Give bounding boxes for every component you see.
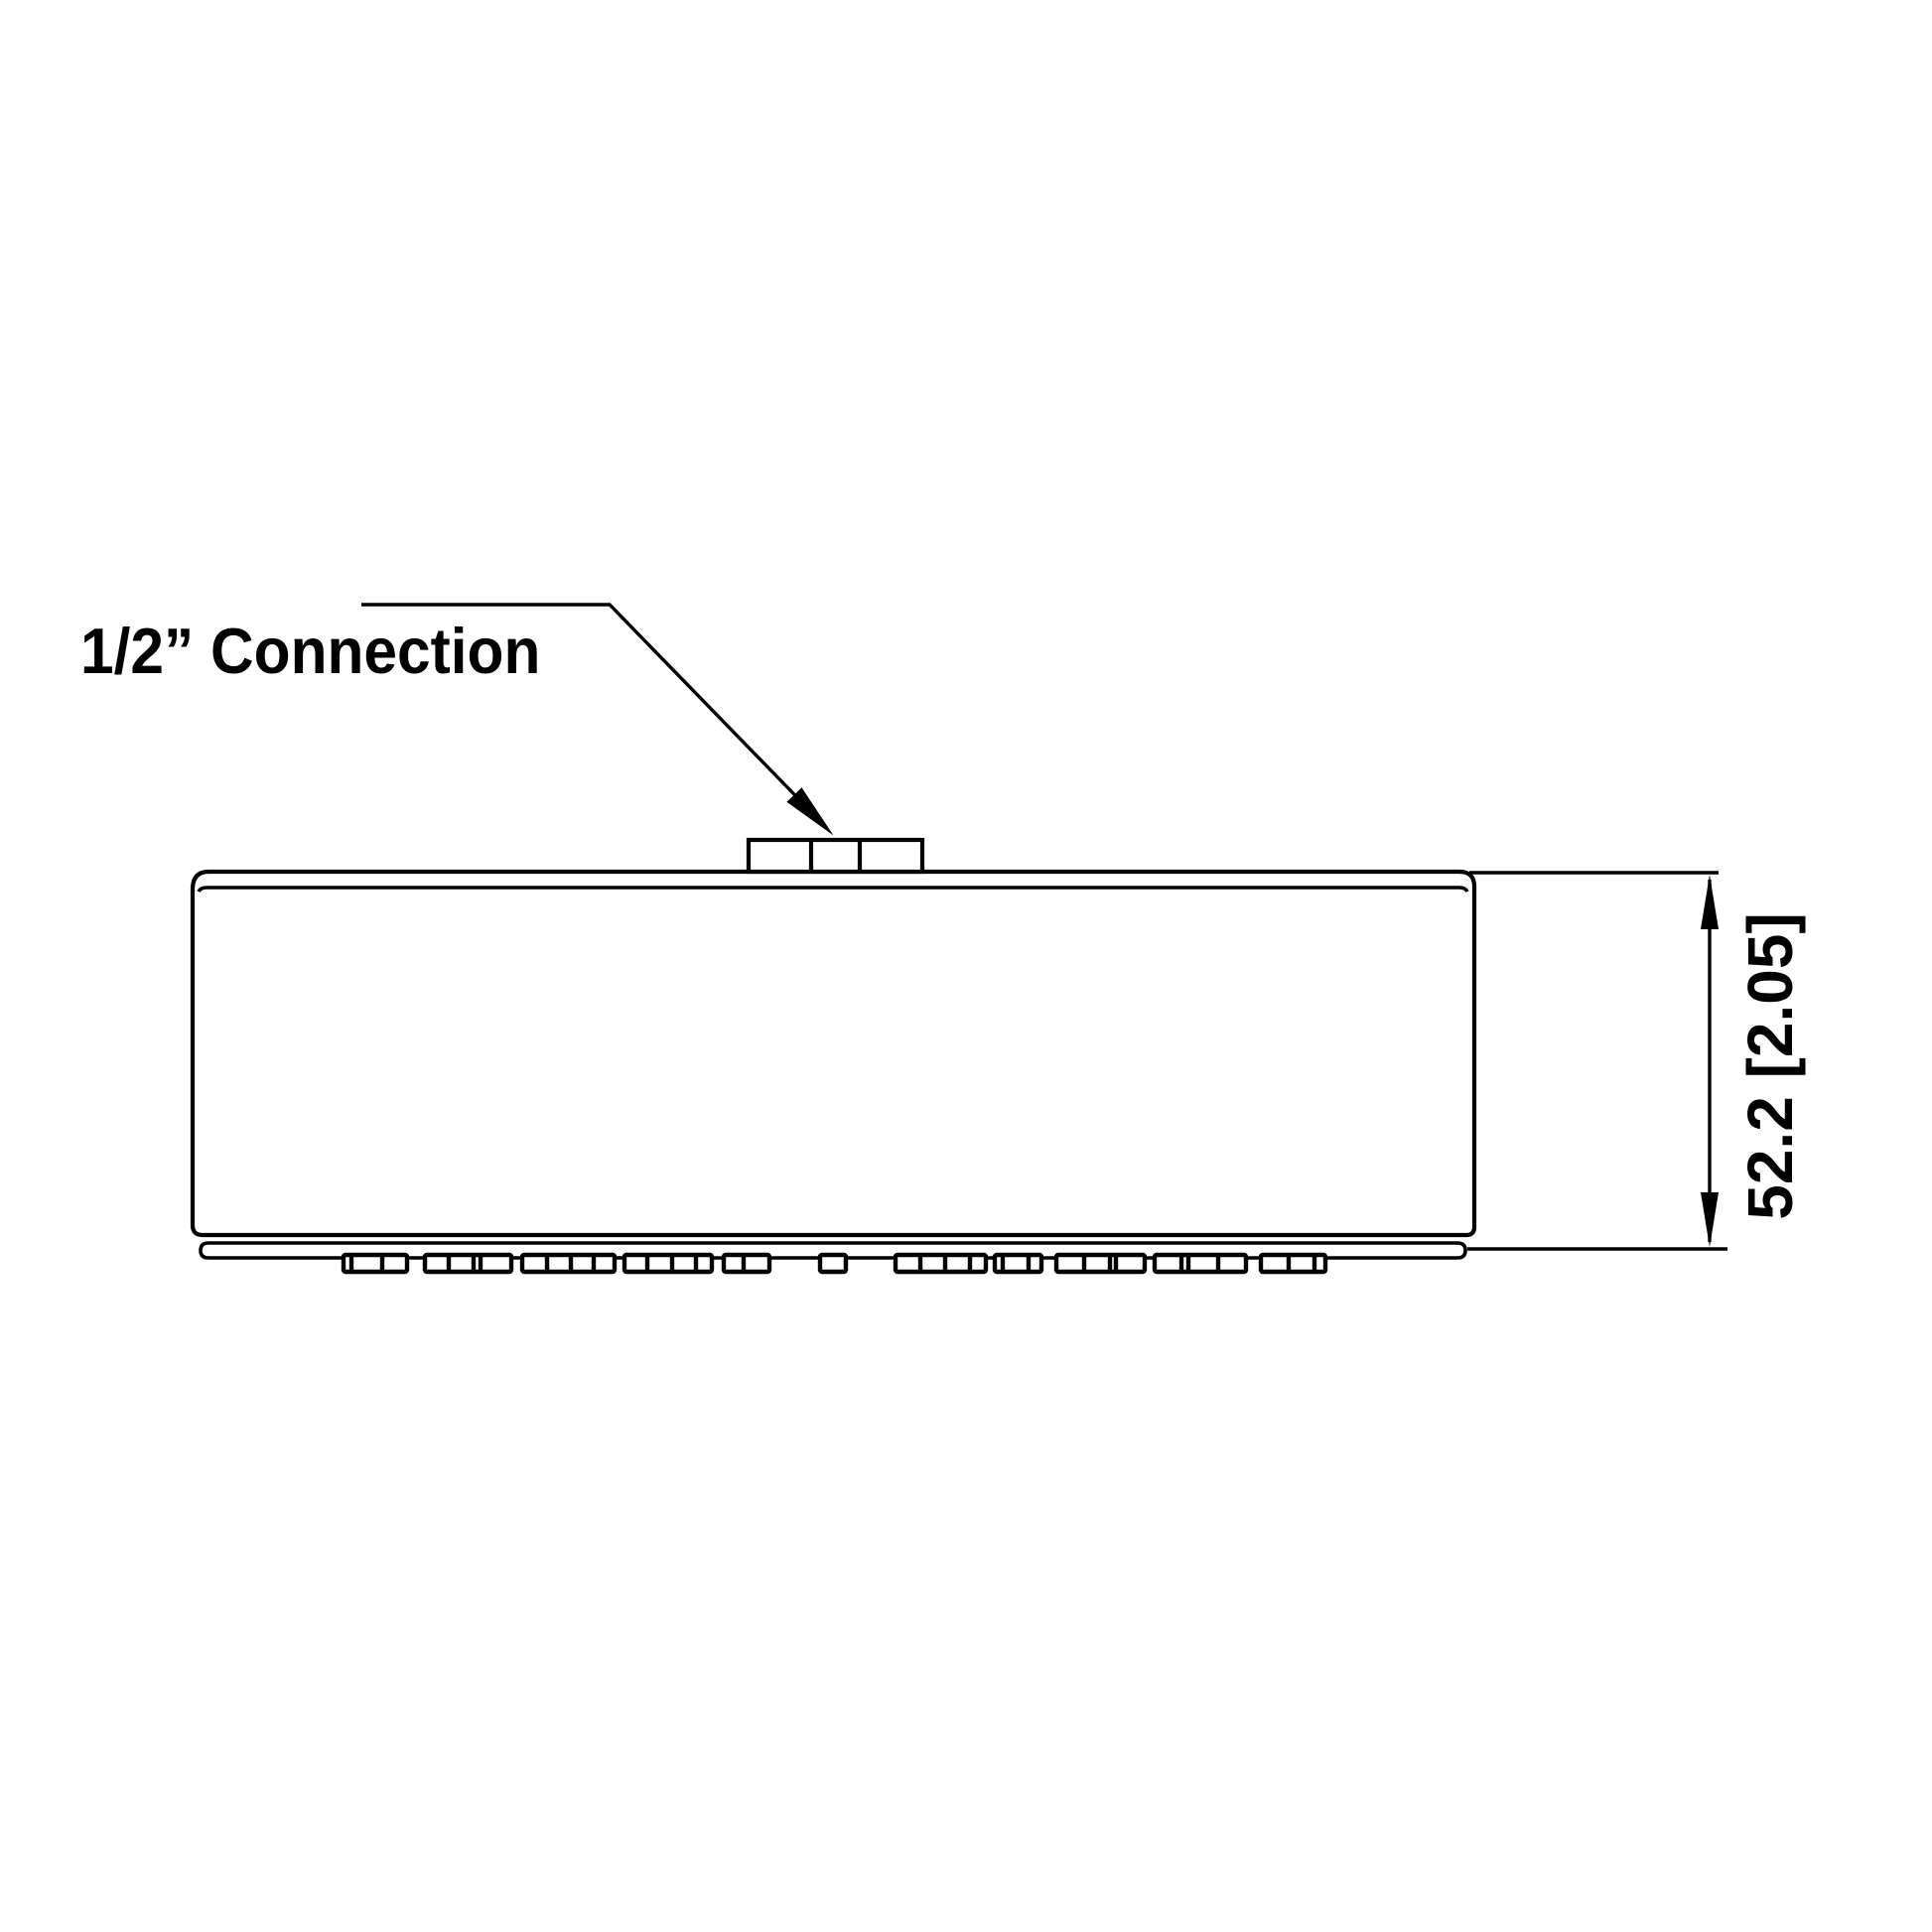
svg-text:52.2 [2.05]: 52.2 [2.05]	[1734, 912, 1806, 1220]
svg-text:1/2” Connection: 1/2” Connection	[80, 616, 540, 687]
